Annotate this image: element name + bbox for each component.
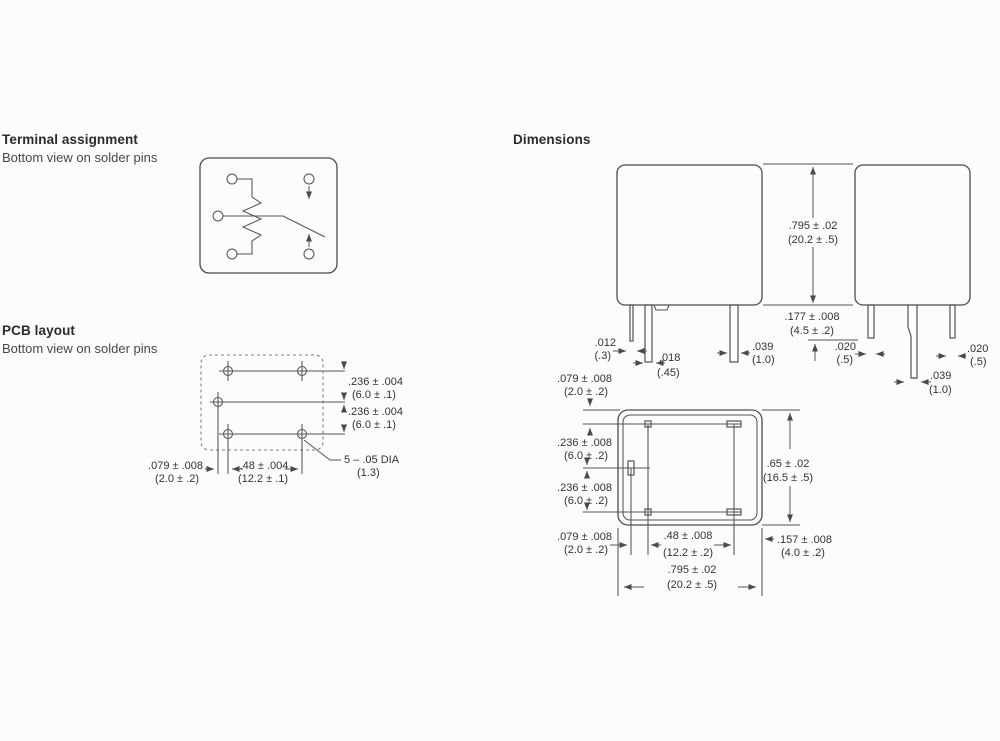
dimensions-side-view: .020 (.5) .039 (1.0) .020 (.5) xyxy=(835,165,989,396)
dim-label: (12.2 ± .2) xyxy=(663,547,713,559)
dim-label: .157 ± .008 xyxy=(777,534,832,546)
dim-label: (2.0 ± .2) xyxy=(155,473,199,485)
case-bump xyxy=(654,305,669,310)
dim-label: (6.0 ± .2) xyxy=(564,495,608,507)
technical-drawing: .236 ± .004 (6.0 ± .1) .236 ± .004 (6.0 … xyxy=(0,0,1000,741)
dim-label: (1.0) xyxy=(752,354,775,366)
dim-label: (2.0 ± .2) xyxy=(564,544,608,556)
terminal-pin xyxy=(213,211,223,221)
dim-label: .039 xyxy=(752,341,773,353)
dim-label: (16.5 ± .5) xyxy=(763,472,813,484)
dim-label-width: .795 ± .02 xyxy=(668,564,717,576)
dim-label: (6.0 ± .1) xyxy=(352,419,396,431)
dim-label: (12.2 ± .1) xyxy=(238,473,288,485)
dim-label: .48 ± .008 xyxy=(664,530,713,542)
dim-label: (.5) xyxy=(970,356,987,368)
dim-label-height: (20.2 ± .5) xyxy=(788,234,838,246)
dim-label-hole-count: 5 – .05 DIA xyxy=(344,454,400,466)
dim-label: .48 ± .004 xyxy=(240,460,289,472)
dim-label-pin-length: (4.5 ± .2) xyxy=(790,325,834,337)
front-pin-2 xyxy=(645,305,652,362)
dim-label: .236 ± .004 xyxy=(348,376,403,388)
dim-label: .079 ± .008 xyxy=(557,373,612,385)
terminal-pin xyxy=(304,249,314,259)
dim-label-height: .795 ± .02 xyxy=(789,220,838,232)
dim-label-width: (20.2 ± .5) xyxy=(667,579,717,591)
terminal-pin xyxy=(304,174,314,184)
dim-label-pin-length: .177 ± .008 xyxy=(785,311,840,323)
dim-label: .039 xyxy=(930,370,951,382)
dim-label: (2.0 ± .2) xyxy=(564,386,608,398)
dimensions-bottom-view: .079 ± .008 (2.0 ± .2) .236 ± .008 (6.0 … xyxy=(557,373,832,596)
dim-label: (4.0 ± .2) xyxy=(781,547,825,559)
dim-label: .020 xyxy=(835,341,856,353)
dim-label: .012 xyxy=(595,337,616,349)
side-pin-3 xyxy=(950,305,955,338)
dim-label: .236 ± .004 xyxy=(348,406,403,418)
dim-label-hole-count: (1.3) xyxy=(357,467,380,479)
dim-label: .079 ± .008 xyxy=(557,531,612,543)
terminal-pin xyxy=(227,174,237,184)
dimensions-front-view: .012 (.3) .018 (.45) .039 (1.0) xyxy=(595,165,775,379)
dim-label: (.5) xyxy=(837,354,854,366)
dim-label: .236 ± .008 xyxy=(557,482,612,494)
front-pin-1 xyxy=(630,305,633,341)
terminal-assignment-diagram xyxy=(200,158,337,273)
dim-label: (.45) xyxy=(657,367,680,379)
terminal-pin xyxy=(227,249,237,259)
dim-label: (6.0 ± .2) xyxy=(564,450,608,462)
dim-label: (1.0) xyxy=(929,384,952,396)
dim-label: .236 ± .008 xyxy=(557,437,612,449)
dim-label: .65 ± .02 xyxy=(767,458,810,470)
dim-label: .020 xyxy=(967,343,988,355)
dim-label: .018 xyxy=(659,352,680,364)
dim-label: (6.0 ± .1) xyxy=(352,389,396,401)
front-pin-3 xyxy=(730,305,738,362)
dim-label: (.3) xyxy=(595,350,612,362)
wiper-contact xyxy=(223,216,325,237)
relay-body-front xyxy=(617,165,762,305)
dimensions-height: .795 ± .02 (20.2 ± .5) .177 ± .008 (4.5 … xyxy=(763,164,858,361)
side-pin-1 xyxy=(868,305,874,338)
relay-body-side xyxy=(855,165,970,305)
datasheet-page: Terminal assignment Bottom view on solde… xyxy=(0,0,1000,741)
dim-label: .079 ± .008 xyxy=(148,460,203,472)
side-pin-2 xyxy=(908,305,917,378)
pcb-layout-diagram: .236 ± .004 (6.0 ± .1) .236 ± .004 (6.0 … xyxy=(148,355,403,485)
